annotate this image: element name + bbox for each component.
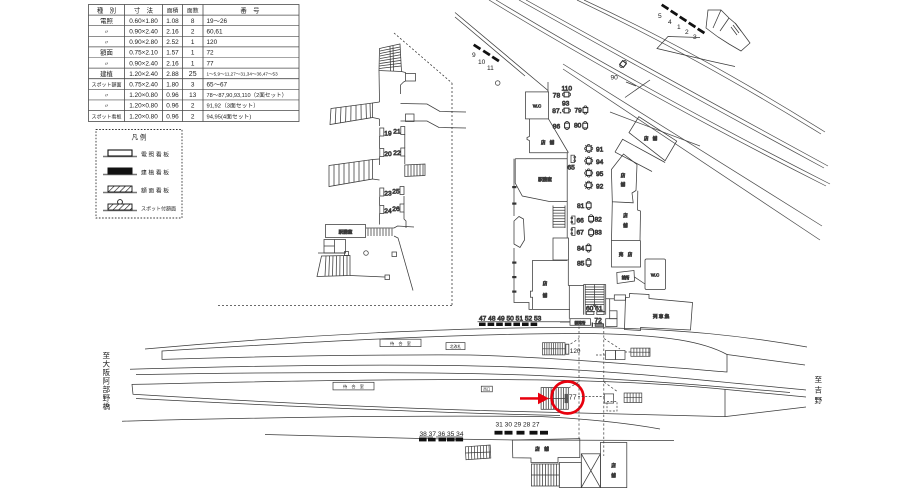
svg-text:1～5,9～11,27～31,34～36,47～53: 1～5,9～11,27～31,34～36,47～53 bbox=[207, 72, 279, 77]
svg-text:面積: 面積 bbox=[167, 6, 179, 14]
svg-text:1.08: 1.08 bbox=[166, 18, 179, 25]
svg-text:81: 81 bbox=[577, 203, 585, 210]
svg-text:W.C: W.C bbox=[651, 273, 659, 278]
svg-text:スポット額面: スポット額面 bbox=[91, 82, 121, 89]
svg-text:93: 93 bbox=[562, 101, 570, 108]
svg-text:2.16: 2.16 bbox=[166, 60, 179, 67]
svg-text:24: 24 bbox=[384, 208, 392, 215]
svg-text:〃: 〃 bbox=[104, 104, 109, 110]
svg-text:78～87,90,93,110（2面セット）: 78～87,90,93,110（2面セット） bbox=[207, 92, 288, 99]
svg-text:舗: 舗 bbox=[623, 222, 628, 229]
svg-text:1: 1 bbox=[191, 39, 195, 46]
svg-text:電 照 看 板: 電 照 看 板 bbox=[141, 151, 169, 159]
svg-text:25: 25 bbox=[189, 71, 197, 78]
svg-text:65～67: 65～67 bbox=[207, 82, 228, 89]
svg-text:78: 78 bbox=[553, 93, 561, 100]
svg-text:19: 19 bbox=[384, 131, 392, 138]
svg-text:1.57: 1.57 bbox=[166, 50, 179, 57]
svg-text:部: 部 bbox=[103, 384, 111, 394]
svg-text:建植: 建植 bbox=[100, 69, 113, 78]
svg-text:番 号: 番 号 bbox=[240, 6, 259, 14]
svg-text:11: 11 bbox=[487, 65, 494, 72]
svg-text:2.16: 2.16 bbox=[166, 29, 179, 36]
svg-text:野: 野 bbox=[815, 396, 823, 405]
svg-text:92: 92 bbox=[596, 183, 604, 190]
svg-text:店: 店 bbox=[543, 280, 548, 287]
svg-text:寸 法: 寸 法 bbox=[134, 5, 154, 14]
svg-text:〃: 〃 bbox=[104, 30, 109, 36]
svg-text:店: 店 bbox=[623, 212, 628, 219]
svg-text:舗: 舗 bbox=[611, 472, 616, 479]
svg-text:10: 10 bbox=[478, 59, 486, 66]
svg-text:列 車 集: 列 車 集 bbox=[653, 313, 670, 320]
svg-text:60,61: 60,61 bbox=[207, 29, 223, 36]
svg-text:北改札: 北改札 bbox=[450, 344, 462, 349]
svg-text:駅務室: 駅務室 bbox=[339, 229, 353, 236]
svg-text:84: 84 bbox=[577, 246, 585, 253]
svg-text:20: 20 bbox=[384, 151, 392, 158]
svg-text:建 植 看 板: 建 植 看 板 bbox=[141, 169, 169, 177]
svg-text:舗: 舗 bbox=[621, 181, 626, 188]
svg-text:舗: 舗 bbox=[543, 292, 548, 299]
svg-text:0.75×2.40: 0.75×2.40 bbox=[129, 82, 158, 89]
svg-text:110: 110 bbox=[562, 86, 573, 93]
svg-text:0.96: 0.96 bbox=[166, 103, 179, 110]
svg-text:8: 8 bbox=[191, 18, 195, 25]
svg-text:2.88: 2.88 bbox=[166, 71, 179, 78]
svg-text:83: 83 bbox=[595, 230, 603, 237]
svg-text:1.20×0.80: 1.20×0.80 bbox=[129, 113, 158, 120]
svg-text:77: 77 bbox=[207, 60, 215, 67]
svg-text:13: 13 bbox=[189, 92, 197, 99]
svg-text:1.20×0.80: 1.20×0.80 bbox=[129, 92, 158, 99]
svg-text:大: 大 bbox=[103, 359, 111, 369]
svg-text:至: 至 bbox=[815, 375, 823, 384]
svg-text:79: 79 bbox=[575, 108, 583, 115]
svg-text:87.: 87. bbox=[552, 108, 561, 115]
svg-text:120: 120 bbox=[207, 39, 218, 46]
svg-text:82: 82 bbox=[595, 217, 603, 224]
svg-text:1.80: 1.80 bbox=[166, 82, 179, 89]
svg-text:精算所: 精算所 bbox=[575, 320, 586, 325]
svg-text:23: 23 bbox=[384, 191, 392, 198]
svg-text:西口: 西口 bbox=[483, 387, 491, 392]
svg-text:スポット看板: スポット看板 bbox=[91, 113, 121, 120]
svg-text:1: 1 bbox=[191, 60, 195, 67]
svg-text:72: 72 bbox=[207, 50, 215, 57]
svg-text:94: 94 bbox=[596, 159, 604, 166]
svg-text:詰所: 詰所 bbox=[622, 275, 630, 280]
svg-text:85: 85 bbox=[577, 261, 585, 268]
svg-text:0.90×2.80: 0.90×2.80 bbox=[129, 39, 158, 46]
svg-text:65: 65 bbox=[568, 165, 576, 172]
svg-text:待 合 室: 待 合 室 bbox=[390, 340, 411, 347]
svg-text:66: 66 bbox=[577, 218, 585, 225]
svg-text:47 48 49 50 51 52 53: 47 48 49 50 51 52 53 bbox=[479, 316, 542, 323]
svg-text:店: 店 bbox=[611, 462, 616, 469]
svg-text:94,95(4面セット): 94,95(4面セット) bbox=[207, 113, 252, 120]
svg-text:待 合 室: 待 合 室 bbox=[343, 383, 364, 390]
svg-text:2.52: 2.52 bbox=[166, 39, 179, 46]
svg-text:91: 91 bbox=[596, 147, 604, 154]
svg-text:3: 3 bbox=[191, 82, 195, 89]
svg-text:26: 26 bbox=[392, 206, 400, 213]
svg-text:67: 67 bbox=[577, 230, 585, 237]
svg-text:駅務室: 駅務室 bbox=[538, 176, 552, 183]
svg-text:凡 例: 凡 例 bbox=[131, 133, 146, 142]
svg-text:種 別: 種 別 bbox=[97, 5, 116, 14]
svg-text:1: 1 bbox=[677, 24, 681, 31]
svg-text:86: 86 bbox=[553, 124, 561, 131]
svg-text:4: 4 bbox=[668, 19, 672, 26]
svg-text:吉: 吉 bbox=[815, 386, 823, 395]
svg-text:〃: 〃 bbox=[104, 40, 109, 46]
svg-text:橋: 橋 bbox=[103, 401, 111, 411]
svg-text:19～26: 19～26 bbox=[207, 18, 228, 25]
svg-text:21: 21 bbox=[393, 129, 401, 136]
svg-text:25: 25 bbox=[392, 189, 400, 196]
svg-text:スポット付額面: スポット付額面 bbox=[141, 206, 176, 213]
svg-text:W.C: W.C bbox=[533, 104, 541, 109]
svg-text:0.90×2.40: 0.90×2.40 bbox=[129, 29, 158, 36]
svg-text:0.96: 0.96 bbox=[166, 113, 179, 120]
svg-text:95: 95 bbox=[596, 171, 604, 178]
svg-text:5: 5 bbox=[658, 13, 662, 20]
svg-text:22: 22 bbox=[393, 150, 401, 157]
svg-text:額面: 額面 bbox=[100, 48, 113, 57]
svg-text:面数: 面数 bbox=[187, 6, 199, 14]
svg-text:0.60×1.80: 0.60×1.80 bbox=[129, 18, 158, 25]
svg-text:91,92（3面セット）: 91,92（3面セット） bbox=[207, 103, 260, 110]
svg-text:9: 9 bbox=[472, 52, 476, 59]
svg-text:店 舗: 店 舗 bbox=[535, 446, 549, 453]
svg-text:2: 2 bbox=[191, 29, 195, 36]
svg-text:〃: 〃 bbox=[104, 93, 109, 99]
svg-text:1: 1 bbox=[191, 50, 195, 57]
svg-text:0.75×2.10: 0.75×2.10 bbox=[129, 50, 158, 57]
svg-text:0.96: 0.96 bbox=[166, 92, 179, 99]
svg-text:売 店: 売 店 bbox=[619, 251, 633, 258]
svg-text:31 30 29 28 27: 31 30 29 28 27 bbox=[496, 422, 540, 429]
svg-text:〃: 〃 bbox=[104, 61, 109, 67]
svg-text:90: 90 bbox=[611, 75, 619, 82]
svg-text:2: 2 bbox=[191, 103, 195, 110]
svg-text:店 舗: 店 舗 bbox=[541, 139, 555, 146]
svg-text:2: 2 bbox=[191, 113, 195, 120]
svg-text:1.20×0.80: 1.20×0.80 bbox=[129, 103, 158, 110]
svg-text:店: 店 bbox=[621, 172, 626, 179]
svg-text:額 面 看 板: 額 面 看 板 bbox=[141, 187, 169, 195]
svg-text:電照: 電照 bbox=[100, 17, 113, 25]
svg-text:0.90×2.40: 0.90×2.40 bbox=[129, 60, 158, 67]
svg-text:80: 80 bbox=[574, 123, 582, 130]
svg-text:77: 77 bbox=[569, 394, 577, 401]
svg-text:店 舗: 店 舗 bbox=[644, 135, 658, 142]
svg-text:2: 2 bbox=[685, 29, 689, 36]
svg-text:1.20×2.40: 1.20×2.40 bbox=[129, 71, 158, 78]
